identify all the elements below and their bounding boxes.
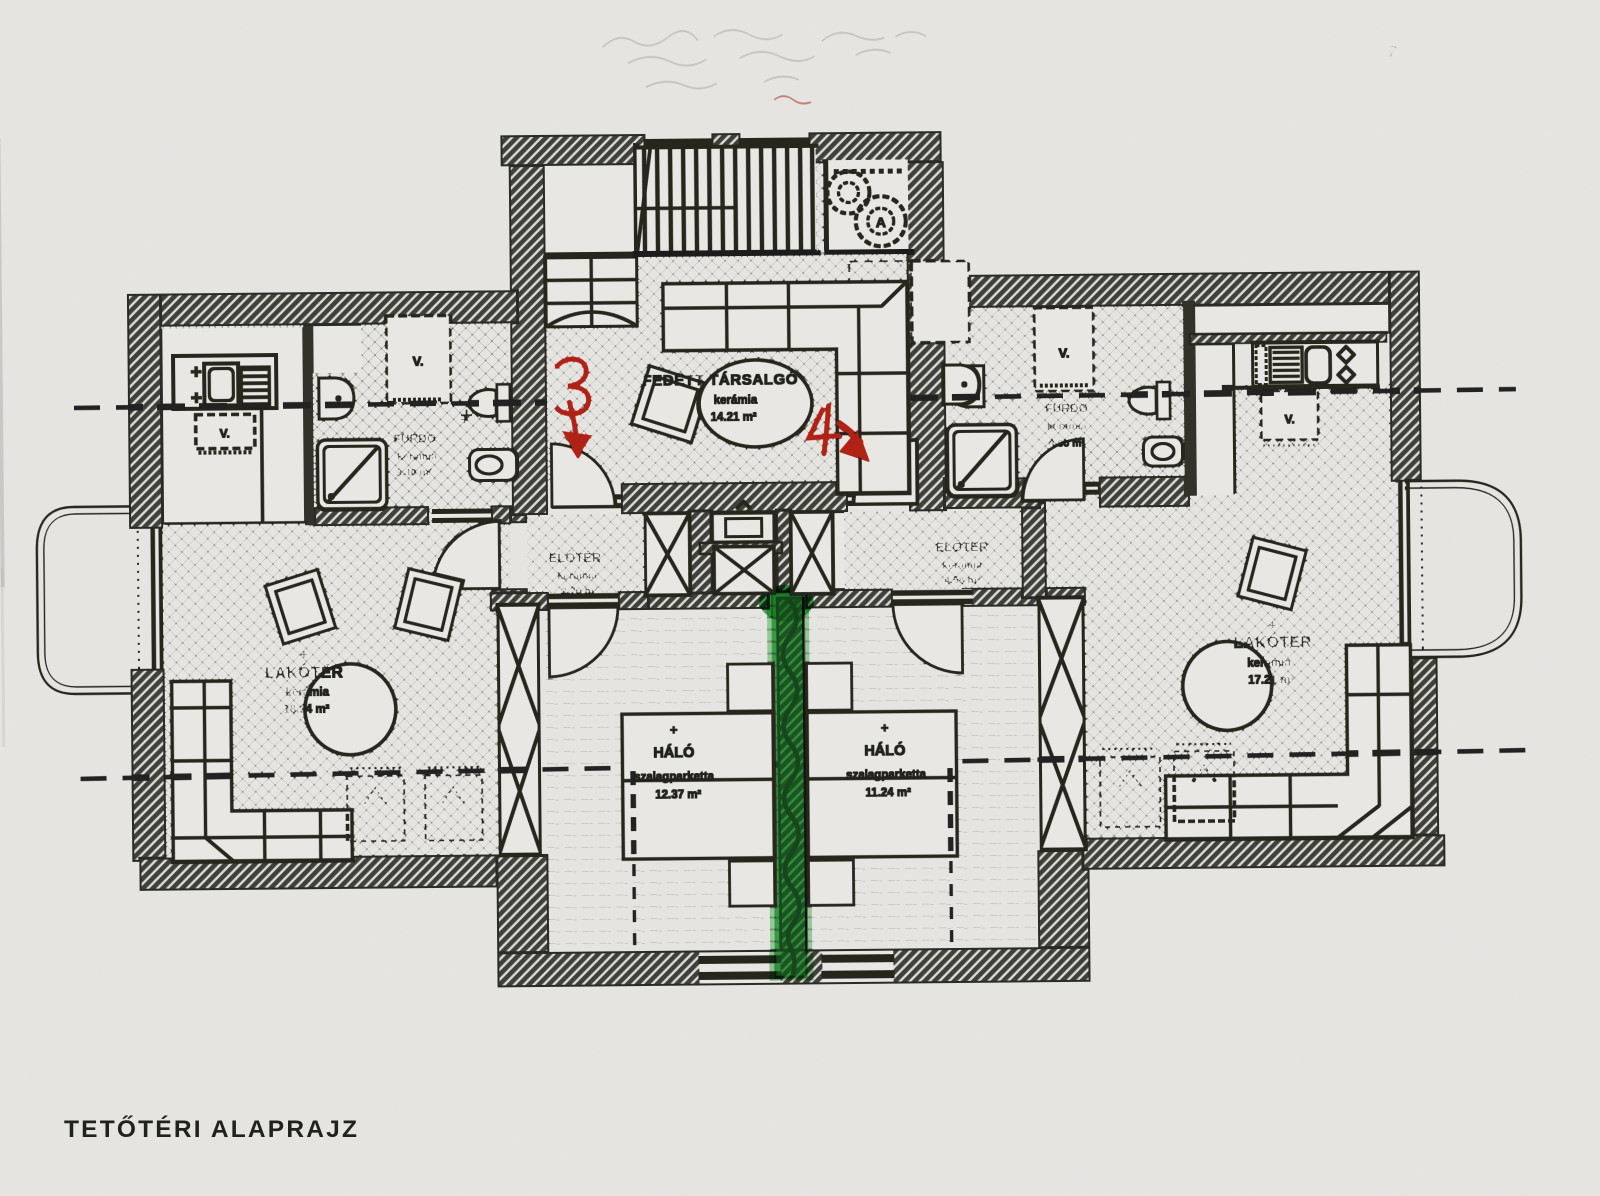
svg-text:+: + <box>300 647 308 662</box>
svg-text:+: + <box>670 722 678 737</box>
svg-text:HÁLÓ: HÁLÓ <box>864 741 905 759</box>
svg-text:kerámia: kerámia <box>285 687 329 699</box>
svg-text:FÜRDŐ: FÜRDŐ <box>393 430 436 445</box>
svg-text:A: A <box>876 214 886 230</box>
svg-text:FEDETT TÁRSALGÓ: FEDETT TÁRSALGÓ <box>642 370 798 389</box>
svg-text:+: + <box>460 411 468 427</box>
svg-text:ELŐTÉR: ELŐTÉR <box>935 539 988 555</box>
svg-text:HÁLÓ: HÁLÓ <box>653 743 694 761</box>
svg-text:3.40 m²: 3.40 m² <box>396 467 433 479</box>
svg-text:+: + <box>881 720 889 735</box>
svg-text:kerámia: kerámia <box>714 394 758 406</box>
svg-text:kerámia: kerámia <box>942 559 982 571</box>
svg-text:TETŐTÉRI ALAPRAJZ: TETŐTÉRI ALAPRAJZ <box>64 1115 359 1143</box>
svg-text:V.: V. <box>1284 412 1294 426</box>
svg-text:12.37 m²: 12.37 m² <box>655 789 701 801</box>
svg-text:V.: V. <box>220 426 230 440</box>
svg-text:kerámia: kerámia <box>397 450 437 462</box>
svg-text:kerámia: kerámia <box>1247 657 1291 669</box>
svg-text:FÜRDŐ: FÜRDŐ <box>1045 400 1088 415</box>
svg-text:2.70 m²: 2.70 m² <box>561 585 598 597</box>
svg-text:szalagparketta: szalagparketta <box>846 769 927 782</box>
svg-text:14.21 m²: 14.21 m² <box>711 411 757 423</box>
svg-text:ELŐTÉR: ELŐTÉR <box>549 550 602 566</box>
svg-text:11.24 m²: 11.24 m² <box>865 787 911 799</box>
svg-text:4.00 m²: 4.00 m² <box>1049 437 1086 449</box>
svg-text:LAKÓTÉR: LAKÓTÉR <box>265 663 344 682</box>
svg-text:17.21 m²: 17.21 m² <box>1248 674 1294 686</box>
svg-text:kerámia: kerámia <box>557 570 597 582</box>
svg-text:szalagparketta: szalagparketta <box>634 771 715 784</box>
svg-text:4.58 m²: 4.58 m² <box>944 574 981 586</box>
svg-text:V.: V. <box>1058 345 1069 360</box>
svg-text:V.: V. <box>412 354 423 369</box>
svg-text:18.24 m²: 18.24 m² <box>283 704 329 716</box>
svg-text:kerámia: kerámia <box>1047 420 1087 432</box>
svg-text:+: + <box>1269 617 1277 632</box>
svg-text:LAKÓTÉR: LAKÓTÉR <box>1234 633 1313 652</box>
